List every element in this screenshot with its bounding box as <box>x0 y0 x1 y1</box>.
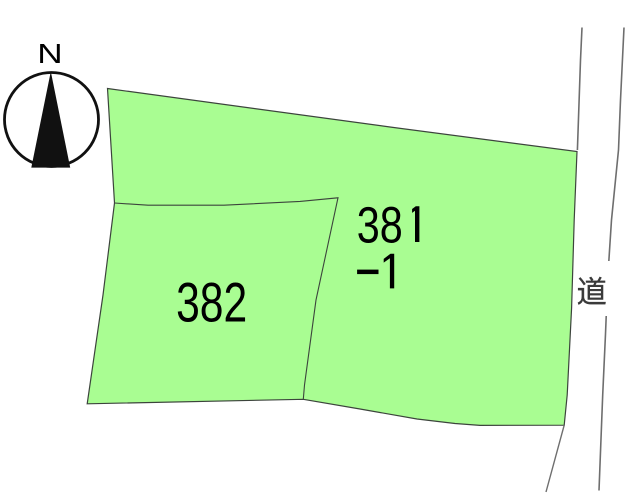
svg-text:382: 382 <box>176 272 247 334</box>
svg-text:38: 38 <box>357 196 403 253</box>
svg-text:N: N <box>37 38 62 69</box>
